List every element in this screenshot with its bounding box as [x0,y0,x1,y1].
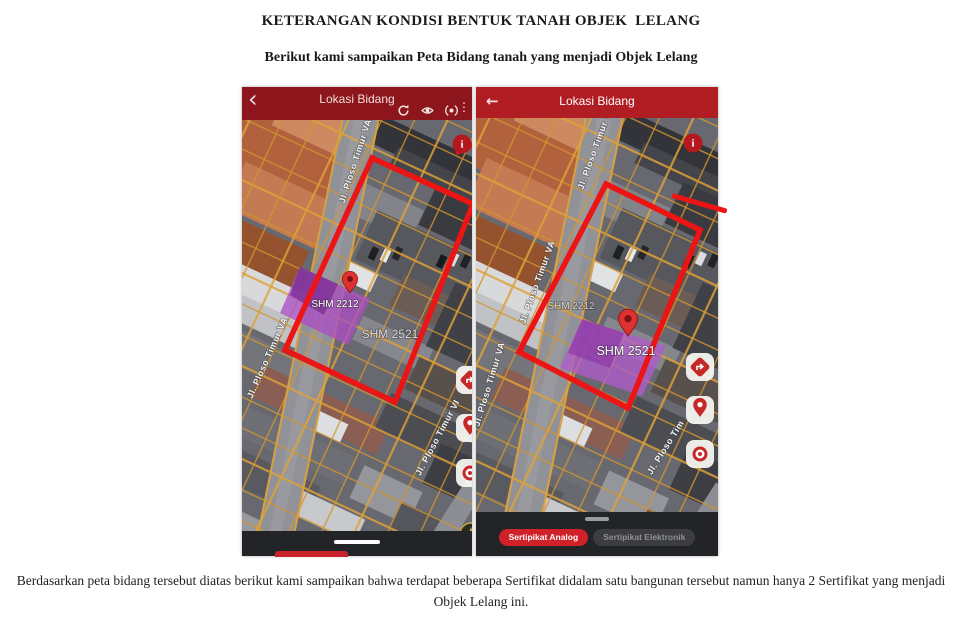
shm-label: SHM 2212 [311,299,359,310]
app-bar-right: ← Lokasi Bidang [476,87,718,118]
android-nav-bar [242,531,472,556]
page-title: KETERANGAN KONDISI BENTUK TANAH OBJEK LE… [0,13,962,30]
sertipikat-analog-button[interactable]: Sertipikat Analog [499,529,589,546]
sheet-drag-handle[interactable] [585,517,609,521]
fab-directions[interactable] [686,353,714,381]
page-subtitle: Berikut kami sampaikan Peta Bidang tanah… [0,50,962,66]
fab-pin[interactable] [456,414,472,442]
document-page: { "document": { "title": "KETERANGAN KON… [0,0,962,632]
sync-icon[interactable] [397,104,410,117]
svg-text:i: i [460,139,463,151]
info-button[interactable]: i [453,135,472,154]
fab-target[interactable] [686,440,714,468]
phone-screenshot-right: SHM 2212SHM 2521Jl. Ploso Timur VAJl. Pl… [476,87,718,556]
radar-icon[interactable] [445,104,458,117]
fab-target[interactable] [456,459,472,487]
app-bar-actions [397,104,458,117]
home-indicator[interactable] [334,540,380,544]
overflow-menu-icon[interactable]: ⋮ [458,100,470,114]
app-bar-left: ‹ Lokasi Bidang ⋮ [242,87,472,120]
fab-pin[interactable] [686,396,714,424]
sertipikat-elektronik-button[interactable]: Sertipikat Elektronik [593,529,695,546]
page-footer-text: Berdasarkan peta bidang tersebut diatas … [0,570,962,612]
info-button[interactable]: i [684,134,703,153]
shm-label: SHM 2521 [362,327,419,341]
phone-screenshot-left: SHM 2212SHM 2521Jl. Ploso Timur VAJl. Pl… [242,87,472,556]
bottom-sheet: Sertipikat Analog Sertipikat Elektronik [476,512,718,556]
fab-directions[interactable] [456,366,472,394]
app-bar-title: Lokasi Bidang [476,94,718,108]
eye-icon[interactable] [421,104,434,117]
partial-red-button [275,551,348,557]
svg-text:i: i [691,138,694,150]
map-viewport-left[interactable]: SHM 2212SHM 2521Jl. Ploso Timur VAJl. Pl… [242,87,472,556]
shm-label: SHM 2212 [547,301,595,312]
map-viewport-right[interactable]: SHM 2212SHM 2521Jl. Ploso Timur VAJl. Pl… [476,87,718,556]
shm-label: SHM 2521 [596,344,655,358]
